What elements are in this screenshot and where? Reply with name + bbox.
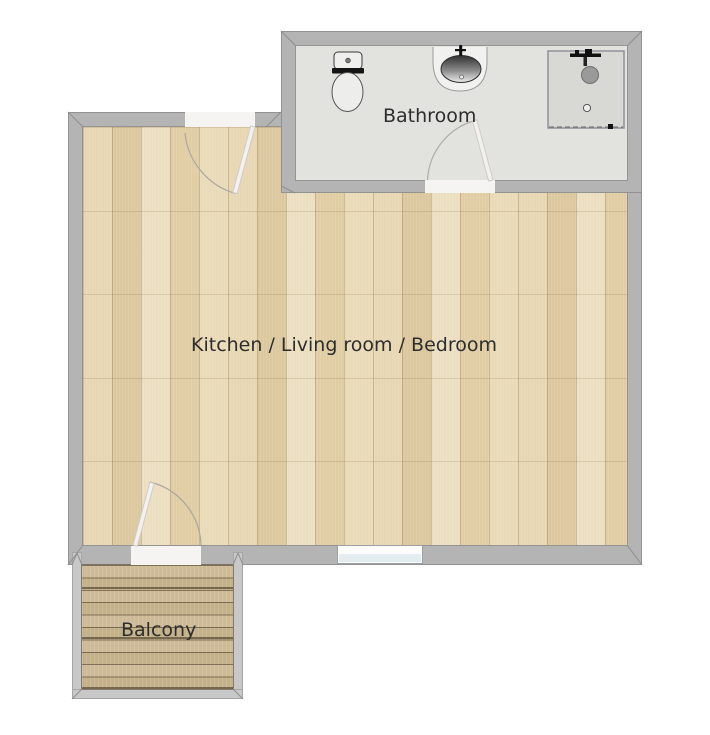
balcony-wall-right: [233, 552, 243, 699]
floor-plan: Bathroom Kitchen / Living room / Bedroom…: [0, 0, 710, 735]
main-room-label: Kitchen / Living room / Bedroom: [191, 334, 497, 356]
main-room-window: [337, 545, 423, 564]
window-glass: [339, 554, 421, 562]
balcony-label: Balcony: [121, 619, 196, 641]
bathroom-label: Bathroom: [383, 105, 476, 127]
balcony-door-opening: [131, 546, 201, 565]
balcony-wall-bottom: [72, 689, 243, 699]
balcony-wall-left: [72, 552, 82, 699]
bathroom-door-opening: [425, 180, 495, 193]
entrance-door-opening: [185, 112, 255, 127]
